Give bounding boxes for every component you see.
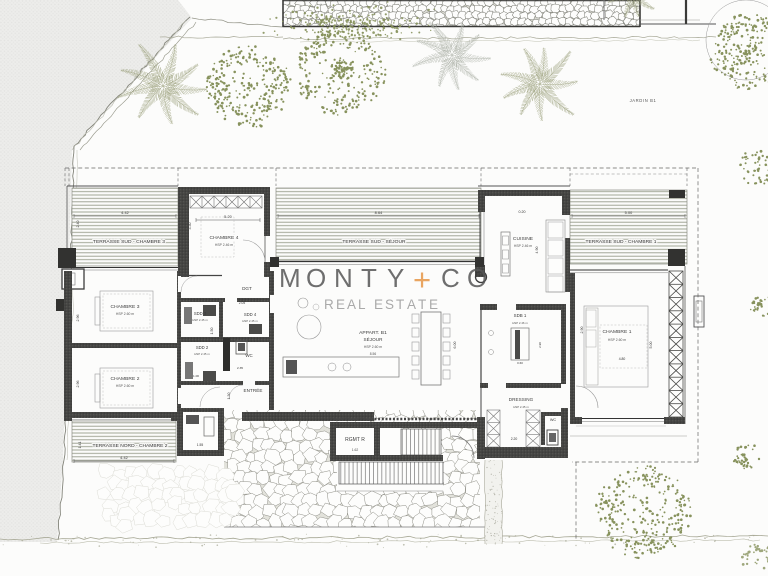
svg-text:HSP 2.46 m: HSP 2.46 m	[215, 243, 233, 247]
svg-text:2.96: 2.96	[76, 315, 80, 322]
svg-text:HSP 2.45 m: HSP 2.45 m	[513, 405, 529, 409]
svg-text:DGT: DGT	[242, 286, 252, 291]
svg-text:TERRASSE SUD - SÉJOUR: TERRASSE SUD - SÉJOUR	[342, 238, 406, 245]
svg-text:HSP 2.60 m: HSP 2.60 m	[116, 384, 134, 388]
svg-text:APPART. B1: APPART. B1	[359, 330, 387, 336]
svg-text:RGMT R: RGMT R	[345, 437, 365, 443]
svg-text:REALESTATE: REALESTATE	[324, 297, 438, 312]
svg-text:1.50: 1.50	[210, 328, 214, 335]
svg-text:6.00: 6.00	[453, 342, 457, 349]
svg-text:HSP 2.45 m: HSP 2.45 m	[194, 352, 210, 356]
svg-text:4.42: 4.42	[121, 211, 129, 215]
svg-text:5.00: 5.00	[649, 342, 653, 349]
svg-text:HSP 2.60 m: HSP 2.60 m	[364, 345, 382, 349]
svg-text:ENTRÉE: ENTRÉE	[244, 387, 263, 393]
svg-text:WC: WC	[245, 353, 252, 358]
svg-text:SDB 1: SDB 1	[514, 313, 527, 318]
svg-text:1.62: 1.62	[352, 448, 359, 452]
svg-text:4.80: 4.80	[619, 357, 626, 361]
svg-text:SDD 4: SDD 4	[244, 312, 257, 317]
svg-text:2.40: 2.40	[76, 221, 80, 228]
svg-text:+: +	[413, 262, 431, 297]
svg-text:2.90: 2.90	[538, 342, 542, 348]
svg-text:CHAMBRE 3: CHAMBRE 3	[111, 304, 140, 310]
svg-text:SÉJOUR: SÉJOUR	[364, 336, 384, 342]
svg-text:WC: WC	[550, 418, 557, 422]
svg-text:HSP 2.46 m: HSP 2.46 m	[514, 244, 532, 248]
svg-text:0.60: 0.60	[517, 361, 523, 365]
svg-text:SDD 2: SDD 2	[196, 345, 209, 350]
svg-text:TERRASSE NORD - CHAMBRE 2: TERRASSE NORD - CHAMBRE 2	[92, 443, 167, 449]
svg-text:1.41: 1.41	[78, 442, 82, 449]
svg-text:2.05: 2.05	[239, 301, 246, 305]
svg-text:8.56: 8.56	[370, 352, 377, 356]
svg-text:HSP 2.60 m: HSP 2.60 m	[608, 338, 626, 342]
svg-text:2.90: 2.90	[580, 327, 584, 334]
svg-text:4.42: 4.42	[120, 456, 128, 460]
svg-text:5.00: 5.00	[625, 211, 633, 215]
svg-text:2.20: 2.20	[511, 437, 518, 441]
svg-text:HSP 2.45 m: HSP 2.45 m	[242, 319, 258, 323]
svg-text:2.35: 2.35	[237, 366, 243, 370]
svg-text:1.00: 1.00	[193, 374, 199, 378]
svg-text:CUISINE: CUISINE	[513, 236, 534, 242]
svg-text:4.90: 4.90	[535, 247, 539, 254]
svg-text:8.64: 8.64	[375, 211, 383, 215]
svg-text:0.20: 0.20	[519, 210, 526, 214]
svg-text:TERRASSE SUD - CHAMBRE 1: TERRASSE SUD - CHAMBRE 1	[586, 239, 657, 245]
svg-text:JARDIN B1: JARDIN B1	[630, 98, 657, 103]
svg-text:SDD 3: SDD 3	[194, 311, 207, 316]
svg-text:HSP 2.60 m: HSP 2.60 m	[116, 312, 134, 316]
svg-text:HSP 2.45 m: HSP 2.45 m	[192, 318, 208, 322]
svg-text:HSP 2.46 m: HSP 2.46 m	[512, 321, 528, 325]
svg-text:CHAMBRE 4: CHAMBRE 4	[210, 235, 239, 241]
svg-text:1.55: 1.55	[197, 443, 204, 447]
svg-text:CHAMBRE 2: CHAMBRE 2	[111, 376, 140, 382]
svg-text:TERRASSE SUD - CHAMBRE 3: TERRASSE SUD - CHAMBRE 3	[93, 239, 165, 245]
svg-text:CHAMBRE 1: CHAMBRE 1	[603, 329, 632, 335]
svg-text:2.96: 2.96	[76, 381, 80, 388]
svg-text:DRESSING: DRESSING	[509, 397, 534, 402]
